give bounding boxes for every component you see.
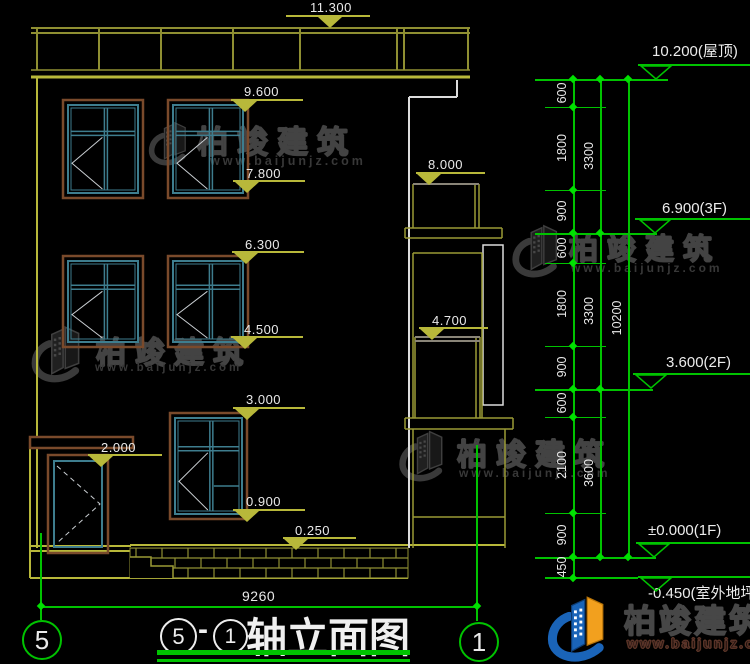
opening-line	[104, 264, 107, 339]
opening-line	[210, 421, 213, 511]
opening-line	[68, 105, 138, 193]
opening-line	[168, 256, 248, 347]
level-marker-triangle	[640, 65, 672, 80]
cad-elevation-drawing: 柏竣建筑 www.baijunjz.com 柏竣建筑 www.baijunjz.…	[0, 0, 750, 664]
elevation-flag-label: 4.700	[432, 313, 467, 328]
opening-line	[177, 291, 207, 338]
elevation-flag-triangle	[233, 338, 257, 349]
level-marker-label: ±0.000(1F)	[648, 522, 721, 539]
dim-chain-label: 1800	[555, 290, 569, 318]
brand-logo-icon	[540, 590, 620, 662]
opening-line	[71, 108, 135, 190]
elevation-flag-label: 4.500	[244, 322, 279, 337]
ground-hatch	[130, 548, 408, 578]
opening-line	[71, 285, 135, 289]
elevation-flag-triangle	[234, 253, 258, 264]
dim-chain-label: 900	[555, 525, 569, 546]
axis-bubble-left: 5	[22, 620, 62, 660]
width-dim-label: 9260	[242, 588, 275, 604]
opening-line	[176, 131, 240, 135]
brand-logo: 柏竣建筑 www.baijunjz.com	[540, 588, 750, 664]
building-elevation-linework	[0, 0, 750, 664]
elevation-flag-label: 2.000	[101, 440, 136, 455]
elevation-flag-triangle	[89, 456, 113, 467]
elevation-flag-label: 9.600	[244, 84, 279, 99]
dim-chain-line	[628, 79, 630, 557]
opening-line	[63, 100, 143, 198]
axis-bubble-right-label: 1	[472, 627, 486, 658]
elevation-flag-label: 6.300	[245, 237, 280, 252]
axis-bubble-left-label: 5	[35, 625, 49, 656]
level-marker-label: 10.200(屋顶)	[652, 40, 738, 61]
opening-line	[209, 264, 212, 339]
elevation-flag-triangle	[235, 511, 259, 522]
opening-line	[178, 421, 239, 511]
title-dash: -	[198, 613, 208, 647]
drawing-title: 轴立面图	[246, 604, 410, 664]
elevation-flag-label: 0.900	[246, 494, 281, 509]
elevation-flag-label: 0.250	[295, 523, 330, 538]
dim-chain-line	[600, 79, 602, 557]
windows-and-door	[48, 100, 248, 553]
elevation-flag-triangle	[420, 329, 444, 340]
level-marker-triangle	[639, 219, 671, 234]
opening-line	[71, 131, 135, 135]
opening-line	[176, 108, 240, 190]
opening-line	[179, 453, 208, 510]
level-marker-label: 3.600(2F)	[666, 354, 731, 371]
dim-chain-label: 900	[555, 357, 569, 378]
dim-chain-label: 3300	[582, 142, 596, 170]
dim-chain-label: 1800	[555, 134, 569, 162]
title-underline	[157, 650, 410, 655]
opening-line	[72, 137, 102, 189]
title-circle-left-label: 5	[172, 624, 184, 650]
dim-chain-label: 450	[555, 557, 569, 578]
opening-line	[71, 264, 135, 339]
balconies	[405, 184, 513, 548]
elevation-flag-triangle	[284, 539, 308, 550]
elevation-flag-triangle	[235, 182, 259, 193]
level-marker-triangle	[638, 543, 670, 558]
opening-line	[178, 447, 239, 451]
axis-bubble-right: 1	[459, 622, 499, 662]
title-circle-right: 1	[213, 619, 248, 654]
elevation-flag-label: 3.000	[246, 392, 281, 407]
dim-chain-label: 10200	[610, 301, 624, 336]
opening-line	[176, 285, 240, 289]
level-marker-triangle	[635, 374, 667, 389]
elevation-flag-triangle	[318, 17, 342, 28]
dim-chain-label: 600	[555, 393, 569, 414]
dim-chain-label: 900	[555, 201, 569, 222]
elevation-flag-label: 11.300	[310, 0, 352, 15]
elevation-flag-triangle	[417, 174, 441, 185]
dim-chain-label: 600	[555, 83, 569, 104]
dim-chain-label: 3300	[582, 297, 596, 325]
opening-line	[209, 108, 212, 190]
opening-line	[173, 261, 243, 342]
bay-box	[483, 245, 503, 405]
level-marker-label: 6.900(3F)	[662, 200, 727, 217]
roof-railing	[31, 28, 470, 77]
dim-chain-label: 600	[555, 238, 569, 259]
opening-line	[104, 108, 107, 190]
opening-line	[177, 137, 207, 189]
opening-line	[170, 413, 247, 519]
opening-line	[176, 264, 240, 339]
opening-line	[68, 261, 138, 342]
elevation-flag-triangle	[235, 409, 259, 420]
axis-line-right	[476, 445, 478, 621]
dim-chain-label: 2100	[555, 451, 569, 479]
opening-line	[72, 291, 102, 338]
opening-line	[57, 466, 100, 543]
dim-chain-label: 3600	[582, 459, 596, 487]
opening-line	[48, 455, 108, 553]
dim-chain-line	[573, 79, 575, 578]
elevation-flag-label: 8.000	[428, 157, 463, 172]
brand-logo-site: www.baijunjz.com	[627, 635, 750, 651]
opening-line	[54, 461, 102, 547]
elevation-flag-label: 7.800	[246, 166, 281, 181]
opening-line	[63, 256, 143, 347]
title-underline-2	[157, 659, 410, 662]
opening-line	[175, 418, 242, 514]
level-line	[535, 389, 653, 391]
elevation-flag-triangle	[233, 101, 257, 112]
title-circle-right-label: 1	[225, 625, 237, 649]
